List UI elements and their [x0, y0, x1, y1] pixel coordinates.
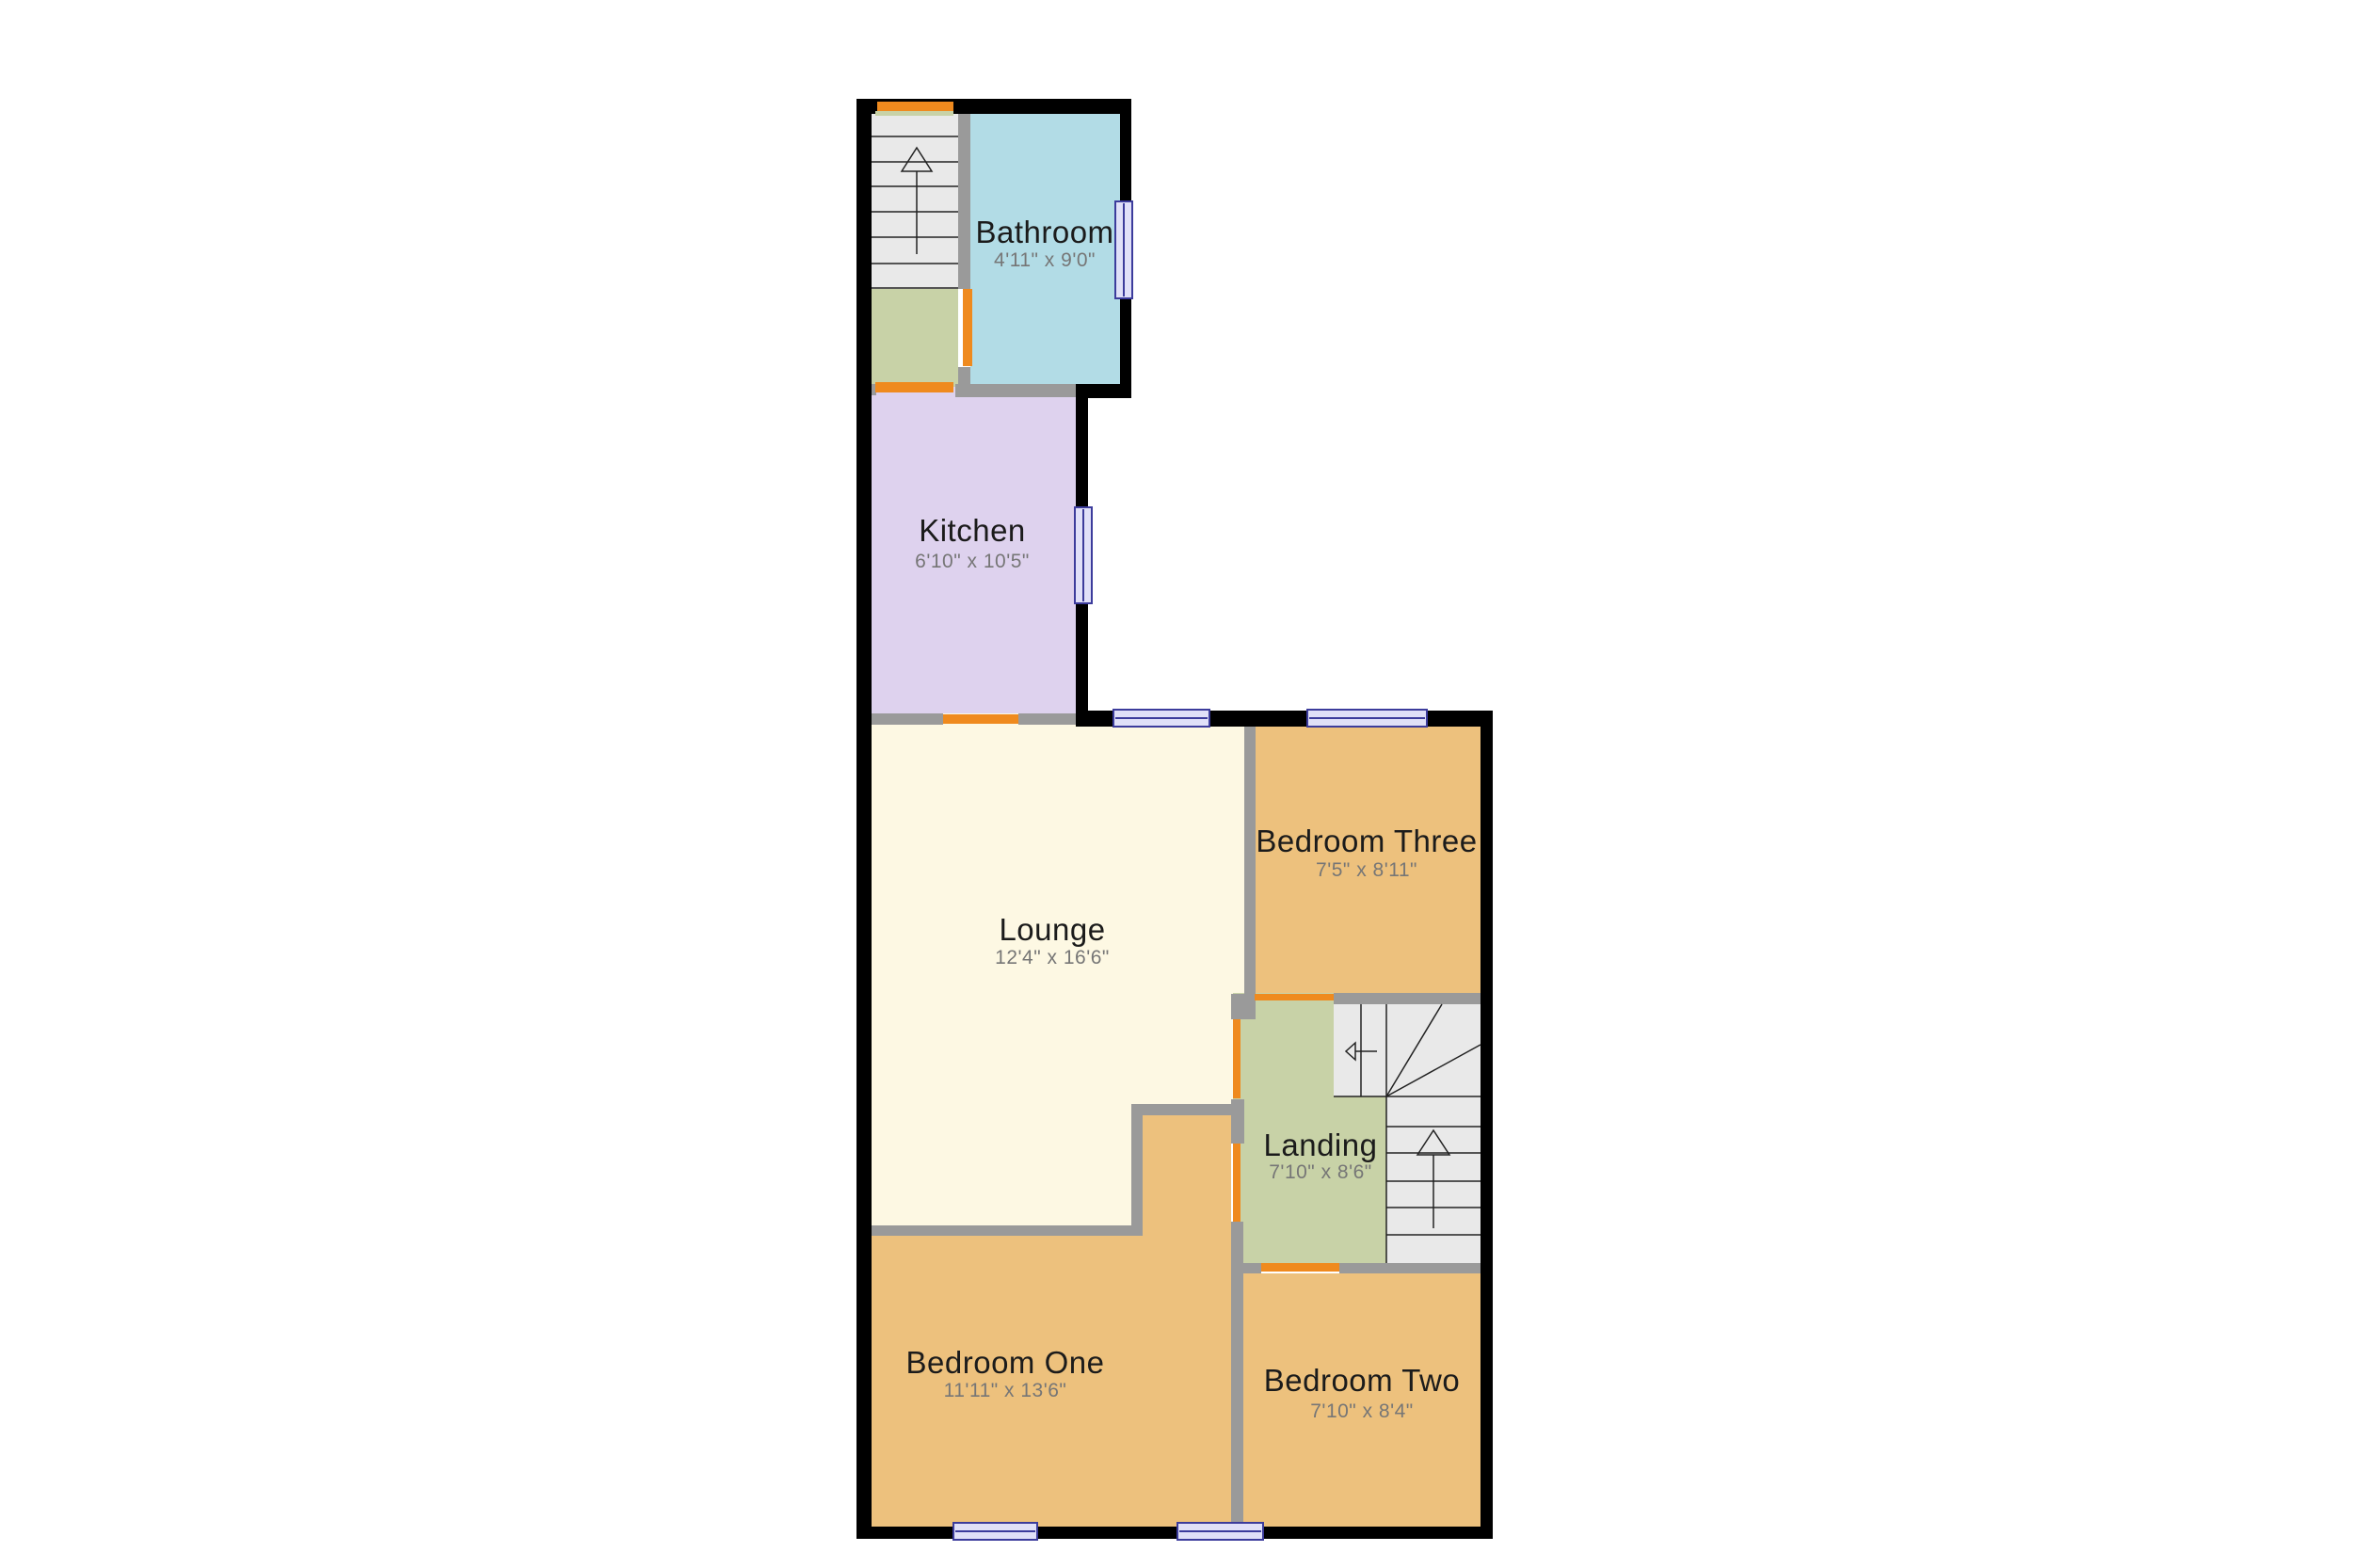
room-dims-bedroom-three: 7'5" x 8'11"	[1316, 859, 1417, 882]
room-bedroom-one-floor-notch	[1142, 1115, 1231, 1236]
room-lounge-floor	[872, 713, 1254, 1104]
floorplan-page: { "plan": { "rooms": [ { "name": "Bathro…	[0, 0, 2353, 1568]
room-dims-landing: 7'10" x 8'6"	[1269, 1161, 1372, 1184]
interior-wall	[870, 1225, 1143, 1236]
door-opening	[875, 382, 953, 392]
interior-wall	[1231, 994, 1256, 1019]
window	[1176, 1522, 1264, 1541]
window-pane-line	[955, 1530, 1035, 1532]
exterior-wall	[1264, 1527, 1493, 1539]
room-label-bedroom-three: Bedroom Three	[1256, 824, 1477, 859]
window-pane-line	[1115, 717, 1208, 719]
interior-wall	[872, 713, 943, 725]
room-dims-bathroom: 4'11" x 9'0"	[994, 249, 1096, 272]
window	[952, 1522, 1038, 1541]
interior-wall	[1231, 1099, 1244, 1144]
exterior-wall	[1076, 384, 1131, 398]
room-label-bedroom-one: Bedroom One	[906, 1345, 1105, 1381]
room-lounge-floor-lower	[872, 1104, 1136, 1236]
room-label-lounge: Lounge	[999, 912, 1105, 948]
stairs-top-floor	[872, 114, 958, 289]
interior-wall	[1018, 713, 1076, 725]
exterior-wall	[856, 99, 872, 1539]
exterior-wall	[1038, 1527, 1176, 1539]
interior-wall	[1334, 993, 1481, 1004]
window	[1114, 200, 1133, 299]
room-label-bedroom-two: Bedroom Two	[1264, 1363, 1461, 1399]
exterior-wall	[856, 1527, 952, 1539]
window	[1074, 506, 1093, 604]
exterior-wall	[1076, 711, 1112, 727]
stairs-lower-upper-floor	[1334, 999, 1481, 1096]
interior-wall	[955, 384, 1079, 397]
room-dims-bedroom-one: 11'11" x 13'6"	[944, 1380, 1067, 1402]
window-pane-line	[1082, 509, 1084, 601]
exterior-wall	[1120, 99, 1131, 200]
door-opening	[1233, 1019, 1241, 1098]
door-opening	[1255, 994, 1334, 1000]
stairs-lower-run-floor	[1386, 1096, 1481, 1263]
window-pane-line	[1179, 1530, 1261, 1532]
door-opening	[1261, 1263, 1339, 1272]
interior-wall	[1339, 1263, 1481, 1273]
door-threshold	[875, 111, 953, 116]
room-label-landing: Landing	[1264, 1128, 1378, 1163]
room-dims-lounge: 12'4" x 16'6"	[995, 947, 1110, 969]
door-opening	[877, 102, 953, 111]
window	[1306, 709, 1428, 728]
window-pane-line	[1123, 203, 1125, 296]
exterior-wall	[1120, 299, 1131, 397]
room-label-kitchen: Kitchen	[919, 513, 1026, 549]
mini-landing-floor	[872, 289, 958, 387]
door-opening	[963, 289, 972, 366]
interior-wall	[1131, 1104, 1242, 1115]
exterior-wall	[1481, 711, 1493, 1539]
room-label-bathroom: Bathroom	[975, 215, 1113, 250]
exterior-wall	[1076, 397, 1088, 506]
exterior-wall	[1076, 604, 1088, 725]
window-pane-line	[1309, 717, 1425, 719]
interior-wall	[958, 114, 970, 289]
window	[1112, 709, 1210, 728]
interior-wall	[1231, 1263, 1261, 1273]
exterior-wall	[1210, 711, 1306, 727]
room-dims-bedroom-two: 7'10" x 8'4"	[1310, 1400, 1414, 1423]
room-dims-kitchen: 6'10" x 10'5"	[915, 551, 1030, 573]
door-opening	[1233, 1144, 1241, 1222]
door-opening	[943, 714, 1018, 724]
interior-wall	[1244, 727, 1256, 994]
floor-plan: Bathroom 4'11" x 9'0" Kitchen 6'10" x 10…	[856, 99, 1493, 1539]
interior-wall	[1131, 1104, 1143, 1236]
